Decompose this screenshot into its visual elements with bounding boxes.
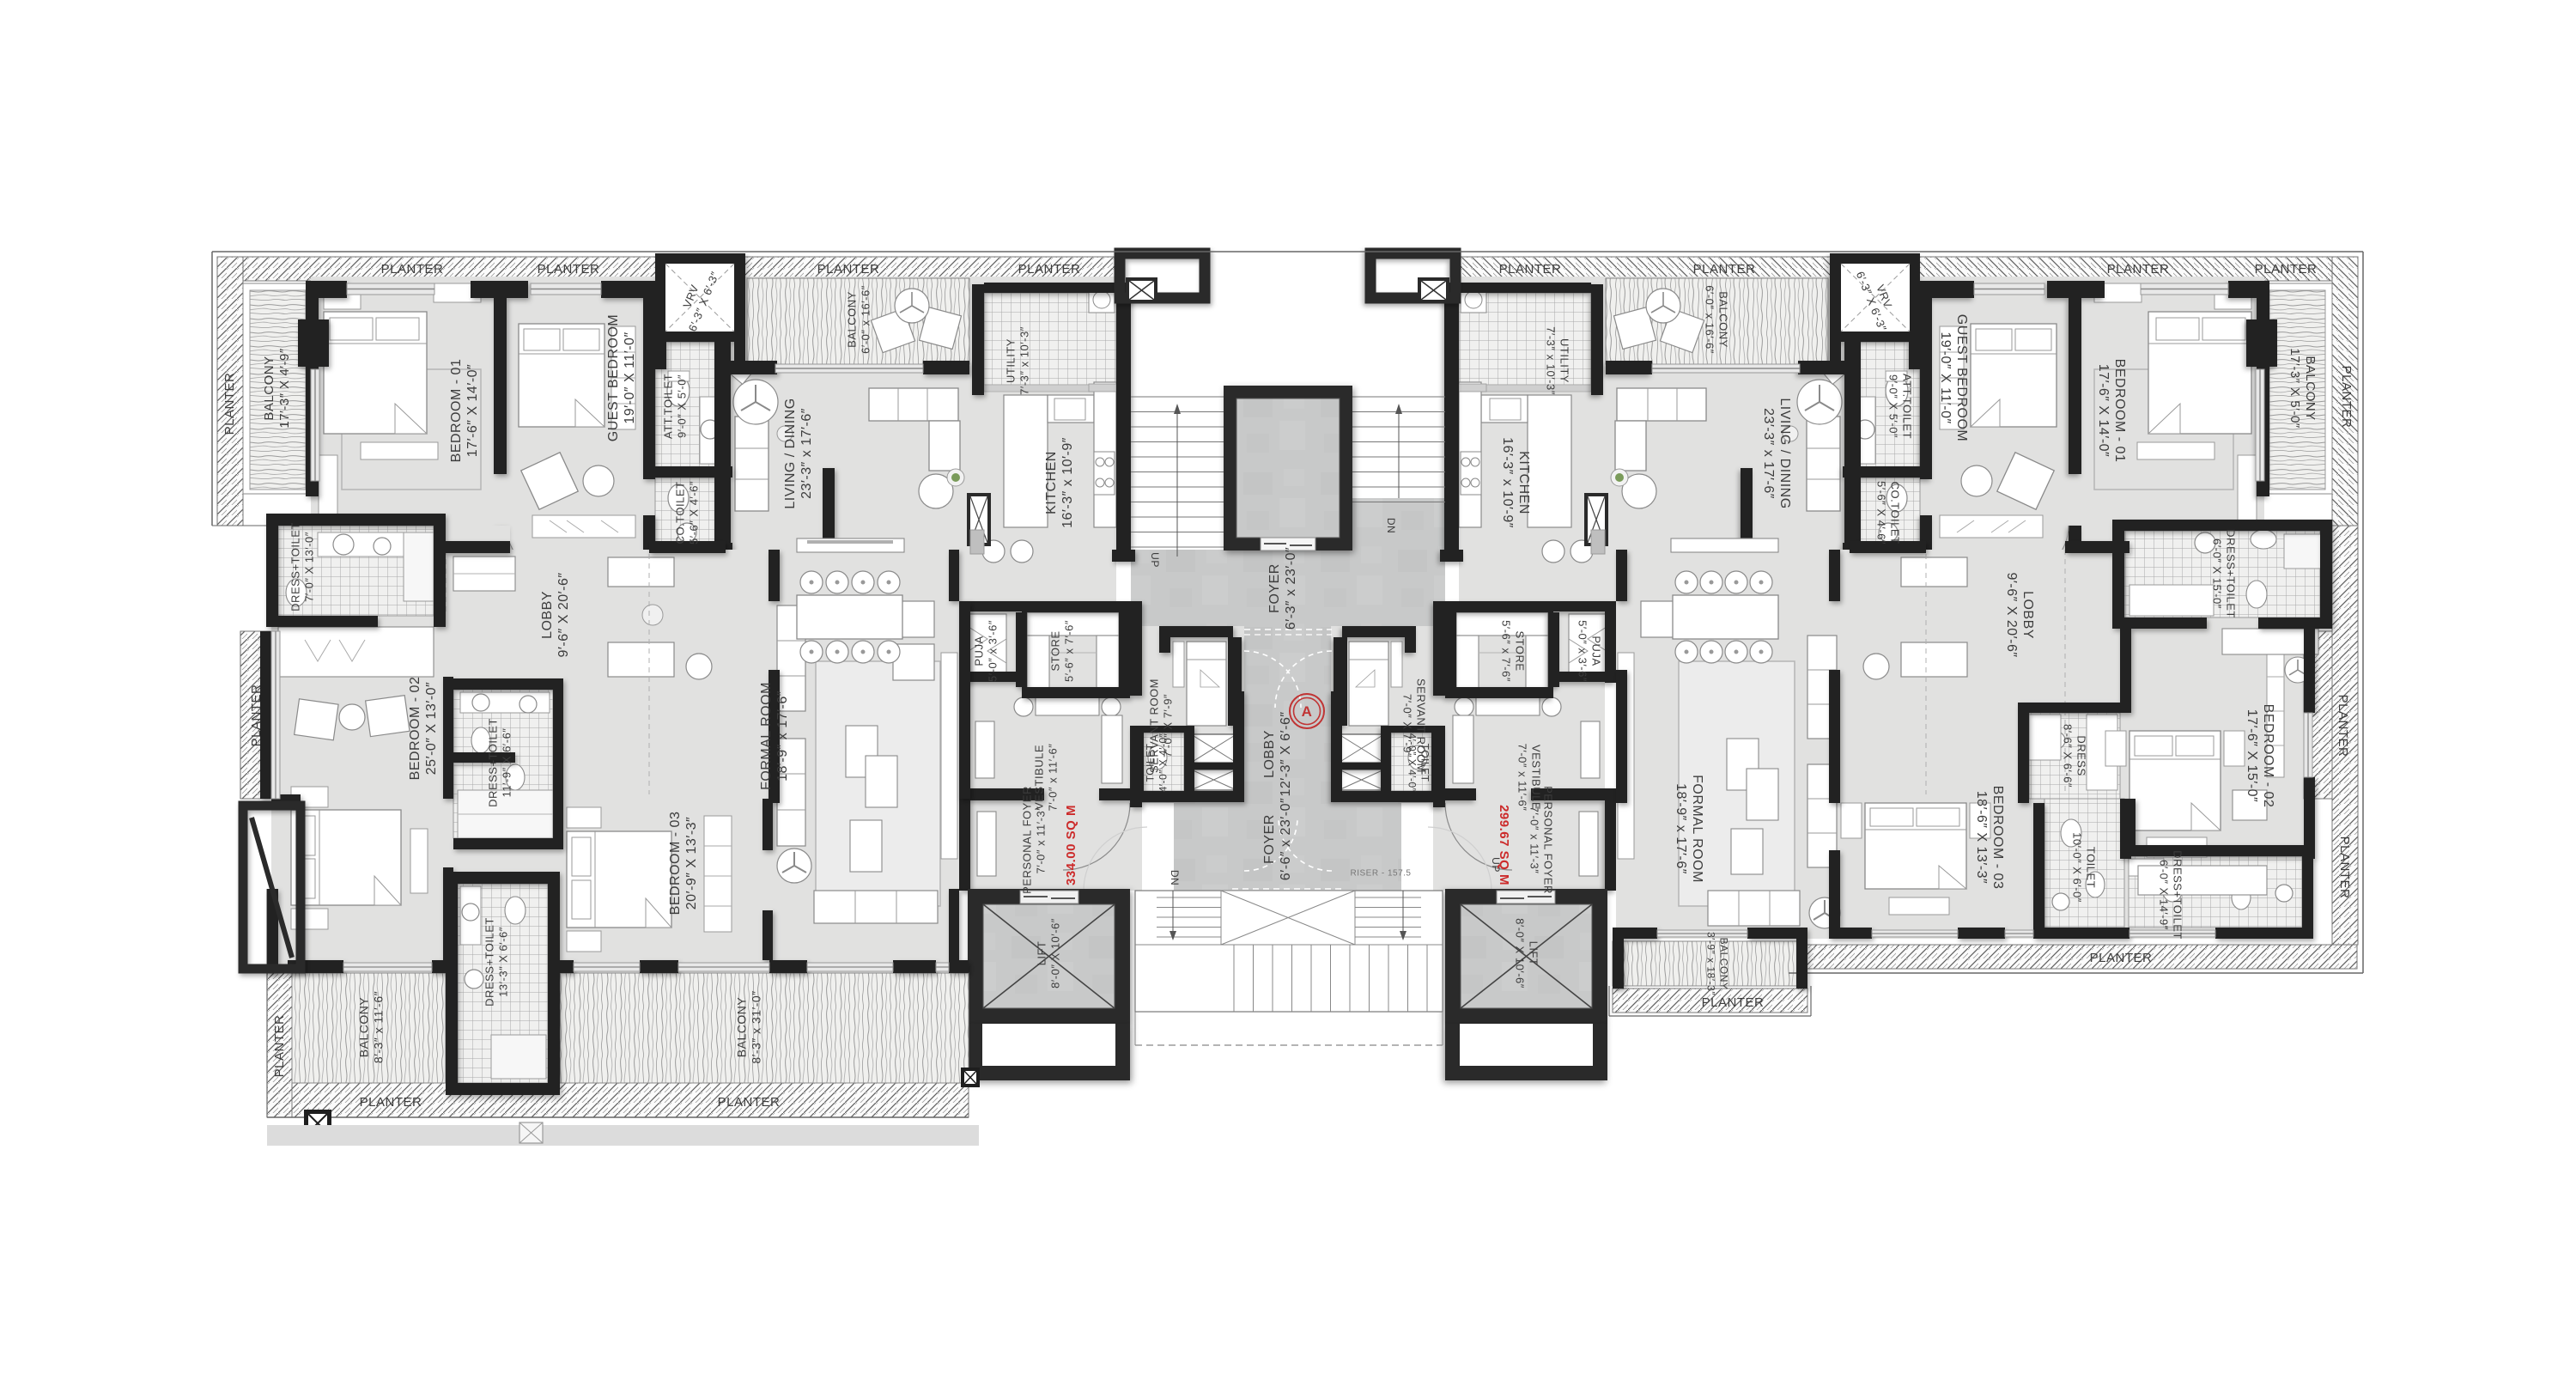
svg-text:PLANTER: PLANTER <box>272 1015 287 1078</box>
svg-text:DRESS+TOILET6′-0″ X 14′-9″: DRESS+TOILET6′-0″ X 14′-9″ <box>2157 850 2184 940</box>
svg-text:BALCONY8′-3″ x 11′-6″: BALCONY8′-3″ x 11′-6″ <box>356 991 385 1063</box>
svg-text:PLANTER: PLANTER <box>222 373 237 435</box>
svg-text:PLANTER: PLANTER <box>2336 695 2350 757</box>
svg-text:DRESS+TOILET7′-0″ X 13′-0″: DRESS+TOILET7′-0″ X 13′-0″ <box>289 522 316 611</box>
svg-text:BALCONY6′-0″ x 16′-6″: BALCONY6′-0″ x 16′-6″ <box>846 285 872 354</box>
svg-text:DRESS+TOILET13′-3″ X 6′-6″: DRESS+TOILET13′-3″ X 6′-6″ <box>483 917 510 1007</box>
svg-text:PLANTER: PLANTER <box>2090 951 2153 965</box>
svg-text:CO.TOILET5′-6″ X 4′-6″: CO.TOILET5′-6″ X 4′-6″ <box>1874 481 1901 544</box>
svg-text:PLANTER: PLANTER <box>360 1095 422 1110</box>
svg-text:ATT.TOILET9′-0″ X 5′-0″: ATT.TOILET9′-0″ X 5′-0″ <box>662 374 689 439</box>
svg-text:VESTIBULE7′-0″ x 11′-6″: VESTIBULE7′-0″ x 11′-6″ <box>1033 744 1060 812</box>
svg-text:BALCONY17′-3″ X 5′-0″: BALCONY17′-3″ X 5′-0″ <box>2287 348 2318 428</box>
svg-text:BALCONY17′-3″ X 4′-9″: BALCONY17′-3″ X 4′-9″ <box>262 348 292 428</box>
svg-text:299.67 SQ M: 299.67 SQ M <box>1497 805 1511 885</box>
svg-text:BALCONY3′-9″ x 18′-3″: BALCONY3′-9″ x 18′-3″ <box>1704 932 1729 995</box>
svg-text:BALCONY6′-0″ x 16′-6″: BALCONY6′-0″ x 16′-6″ <box>1703 285 1729 354</box>
svg-text:PLANTER: PLANTER <box>538 262 600 277</box>
svg-text:CO.TOILET5′-6″ X 4′-6″: CO.TOILET5′-6″ X 4′-6″ <box>674 481 701 544</box>
svg-text:PLANTER: PLANTER <box>2107 262 2170 277</box>
svg-text:PLANTER: PLANTER <box>249 684 264 747</box>
svg-text:PLANTER: PLANTER <box>1693 262 1756 277</box>
svg-text:PLANTER: PLANTER <box>2337 836 2352 899</box>
svg-text:RISER - 157.5: RISER - 157.5 <box>1351 869 1412 879</box>
svg-text:PLANTER: PLANTER <box>1018 262 1081 277</box>
svg-text:PLANTER: PLANTER <box>718 1095 781 1110</box>
svg-text:334.00 SQ M: 334.00 SQ M <box>1064 805 1078 885</box>
svg-text:DN: DN <box>1169 870 1181 885</box>
svg-text:VESTIBULE7′-0″ x 11′-6″: VESTIBULE7′-0″ x 11′-6″ <box>1516 744 1542 812</box>
svg-text:PLANTER: PLANTER <box>1702 995 1765 1010</box>
svg-text:A: A <box>1302 703 1313 720</box>
svg-text:ATT.TOILET9′-0″ X 5′-0″: ATT.TOILET9′-0″ X 5′-0″ <box>1886 374 1913 439</box>
svg-text:PLANTER: PLANTER <box>817 262 880 277</box>
svg-text:PLANTER: PLANTER <box>1499 262 1562 277</box>
svg-text:PLANTER: PLANTER <box>2255 262 2318 277</box>
svg-text:DRESS+TOILET6′-0″ X 15′-0″: DRESS+TOILET6′-0″ X 15′-0″ <box>2210 529 2237 618</box>
svg-text:PLANTER: PLANTER <box>2339 366 2354 429</box>
svg-text:BALCONY8′-3″ x 31′-0″: BALCONY8′-3″ x 31′-0″ <box>734 990 762 1063</box>
svg-text:DRESS+TOILET11′-9″ X 6′-6″: DRESS+TOILET11′-9″ X 6′-6″ <box>487 718 513 807</box>
svg-text:DN: DN <box>1385 518 1397 533</box>
svg-text:PLANTER: PLANTER <box>381 262 444 277</box>
svg-text:UP: UP <box>1149 552 1161 568</box>
